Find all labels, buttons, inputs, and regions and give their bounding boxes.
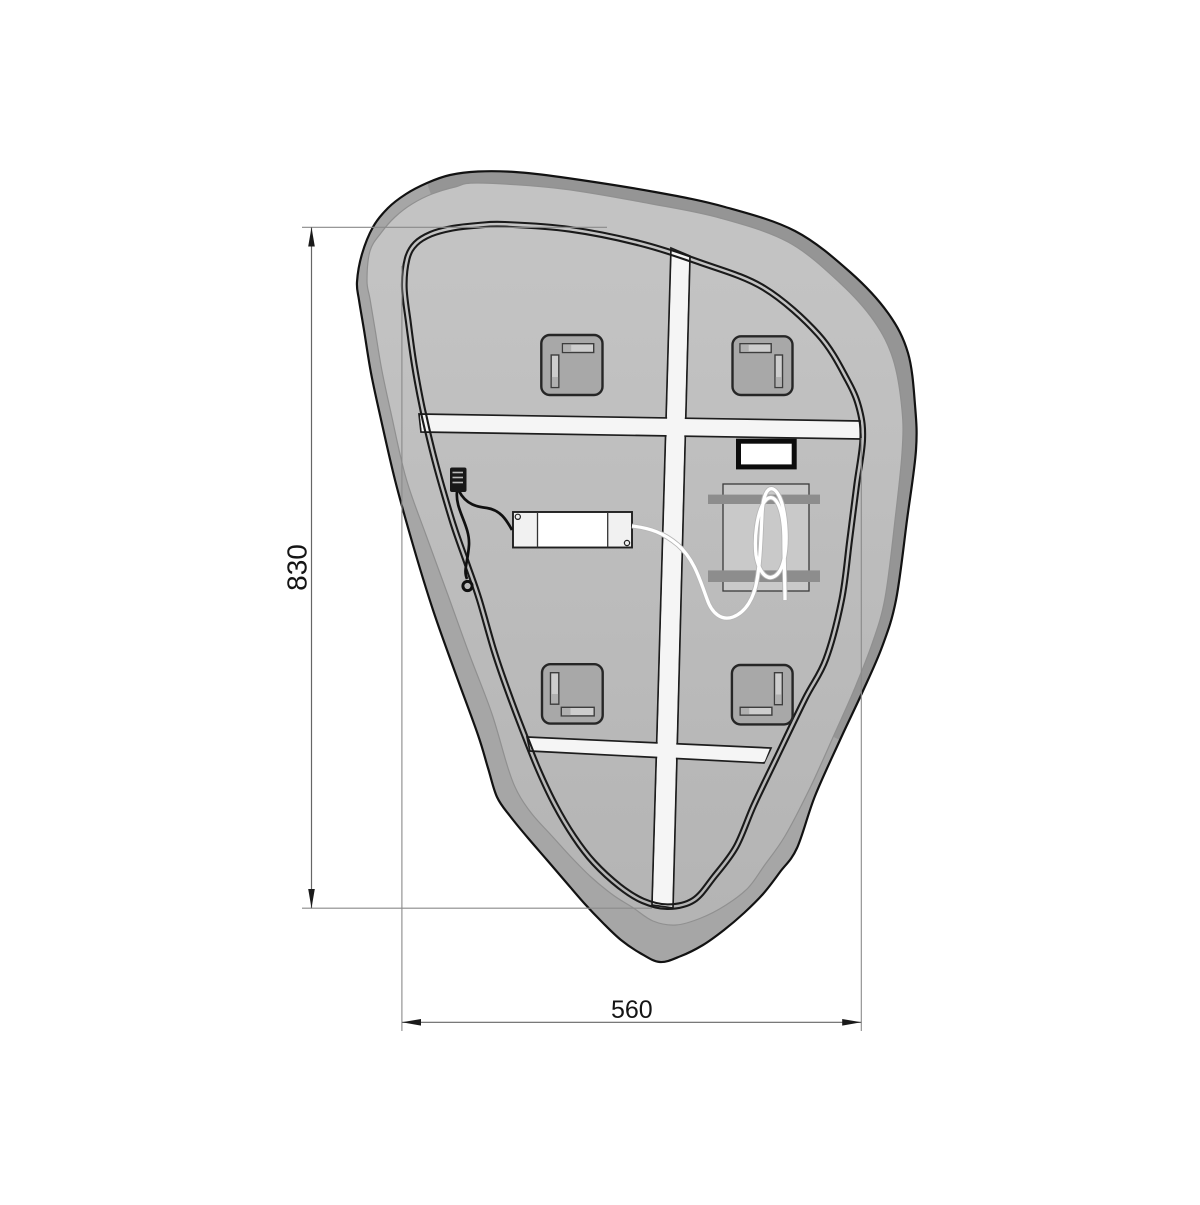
svg-text:560: 560 — [611, 996, 653, 1024]
svg-text:830: 830 — [282, 544, 313, 591]
